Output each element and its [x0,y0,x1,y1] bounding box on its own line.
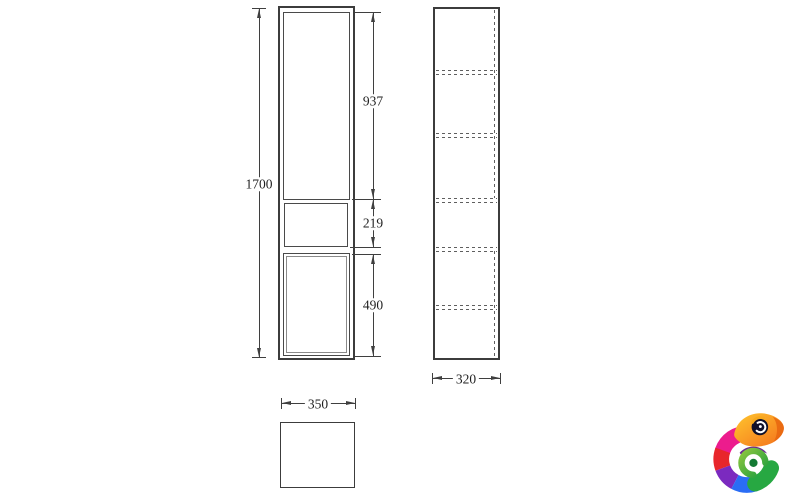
shelf-hidden-line [436,309,497,310]
technical-drawing-canvas: 1700 937 219 490 320 350 [0,0,800,500]
door-hidden-line [494,251,495,356]
dim-label-width: 350 [305,397,331,411]
shelf-hidden-line [436,305,497,306]
arrowhead-left-icon [433,376,442,380]
dim-label-open-shelf: 219 [360,216,386,230]
arrowhead-left-icon [282,401,291,405]
door-hidden-line [494,10,495,198]
shelf-hidden-line [436,251,497,252]
arrowhead-up-icon [371,200,375,209]
dim-tick [252,357,266,358]
arrowhead-up-icon [371,255,375,264]
arrowhead-up-icon [257,9,261,18]
arrowhead-right-icon [346,401,355,405]
shelf-hidden-line [436,137,497,138]
arrowhead-up-icon [371,13,375,22]
extension-line [350,247,381,248]
extension-line [352,199,381,200]
dim-label-upper-door: 937 [360,94,386,108]
chameleon-logo [701,404,793,496]
front-upper-door [283,12,350,200]
shelf-hidden-line [436,198,497,199]
front-open-shelf-niche [284,203,348,247]
dim-label-depth: 320 [453,372,479,386]
side-view-outline [433,7,500,360]
arrowhead-down-icon [371,346,375,355]
arrowhead-down-icon [371,237,375,246]
front-lower-door-panel [286,256,347,353]
shelf-hidden-line [436,70,497,71]
plan-view-outline [280,422,355,488]
shelf-hidden-line [436,74,497,75]
arrowhead-down-icon [257,348,261,357]
extension-line [355,356,381,357]
shelf-hidden-line [436,133,497,134]
front-lower-door [283,253,350,356]
dim-label-lower-door: 490 [360,298,386,312]
dim-label-total-height: 1700 [243,177,276,191]
extension-line [352,254,381,255]
shelf-hidden-line [436,202,497,203]
arrowhead-down-icon [371,189,375,198]
shelf-hidden-line [436,247,497,248]
extension-line [355,12,381,13]
arrowhead-right-icon [491,376,500,380]
